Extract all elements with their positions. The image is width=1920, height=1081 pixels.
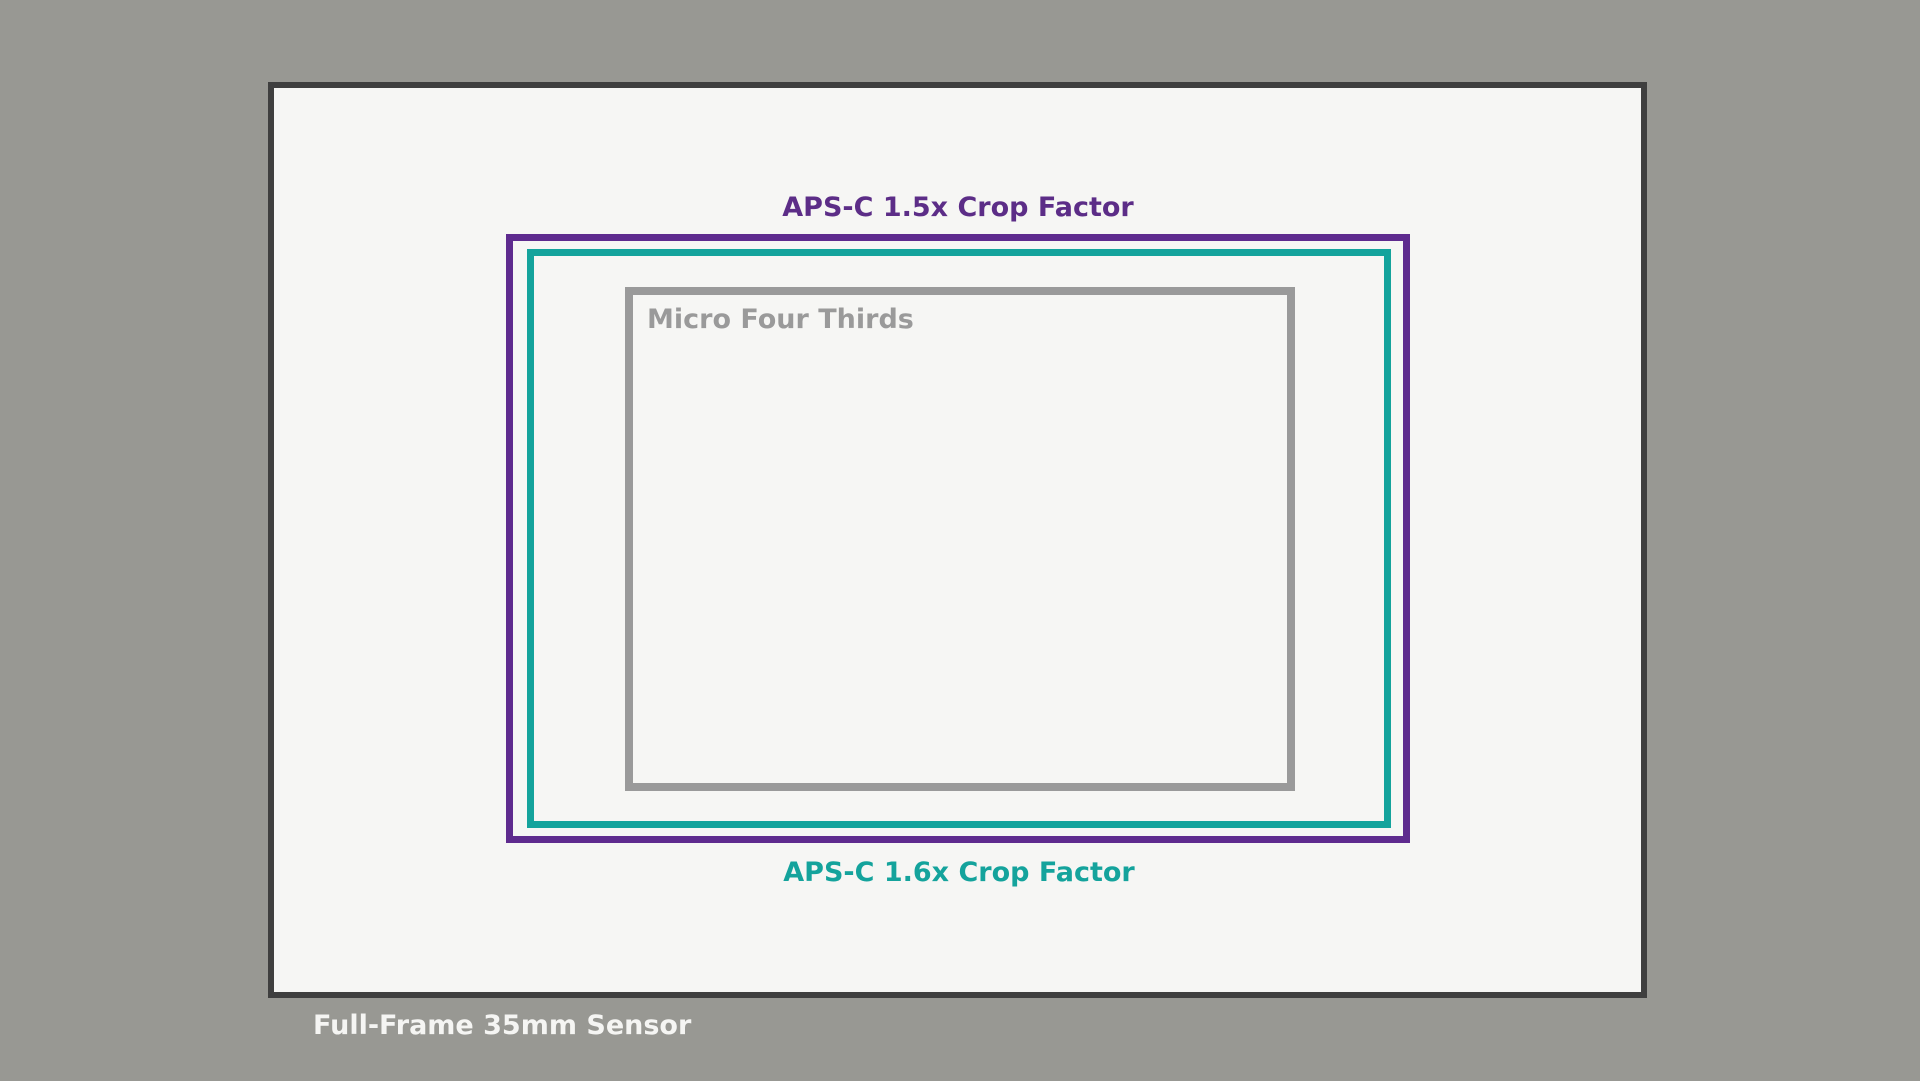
apsc-1-6x-label: APS-C 1.6x Crop Factor	[527, 859, 1391, 887]
micro-four-thirds-rect	[625, 287, 1295, 791]
full-frame-sensor-label: Full-Frame 35mm Sensor	[313, 1012, 691, 1040]
micro-four-thirds-label: Micro Four Thirds	[647, 306, 914, 334]
sensor-size-comparison-diagram: APS-C 1.5x Crop Factor APS-C 1.6x Crop F…	[0, 0, 1920, 1081]
apsc-1-5x-label: APS-C 1.5x Crop Factor	[506, 194, 1410, 222]
